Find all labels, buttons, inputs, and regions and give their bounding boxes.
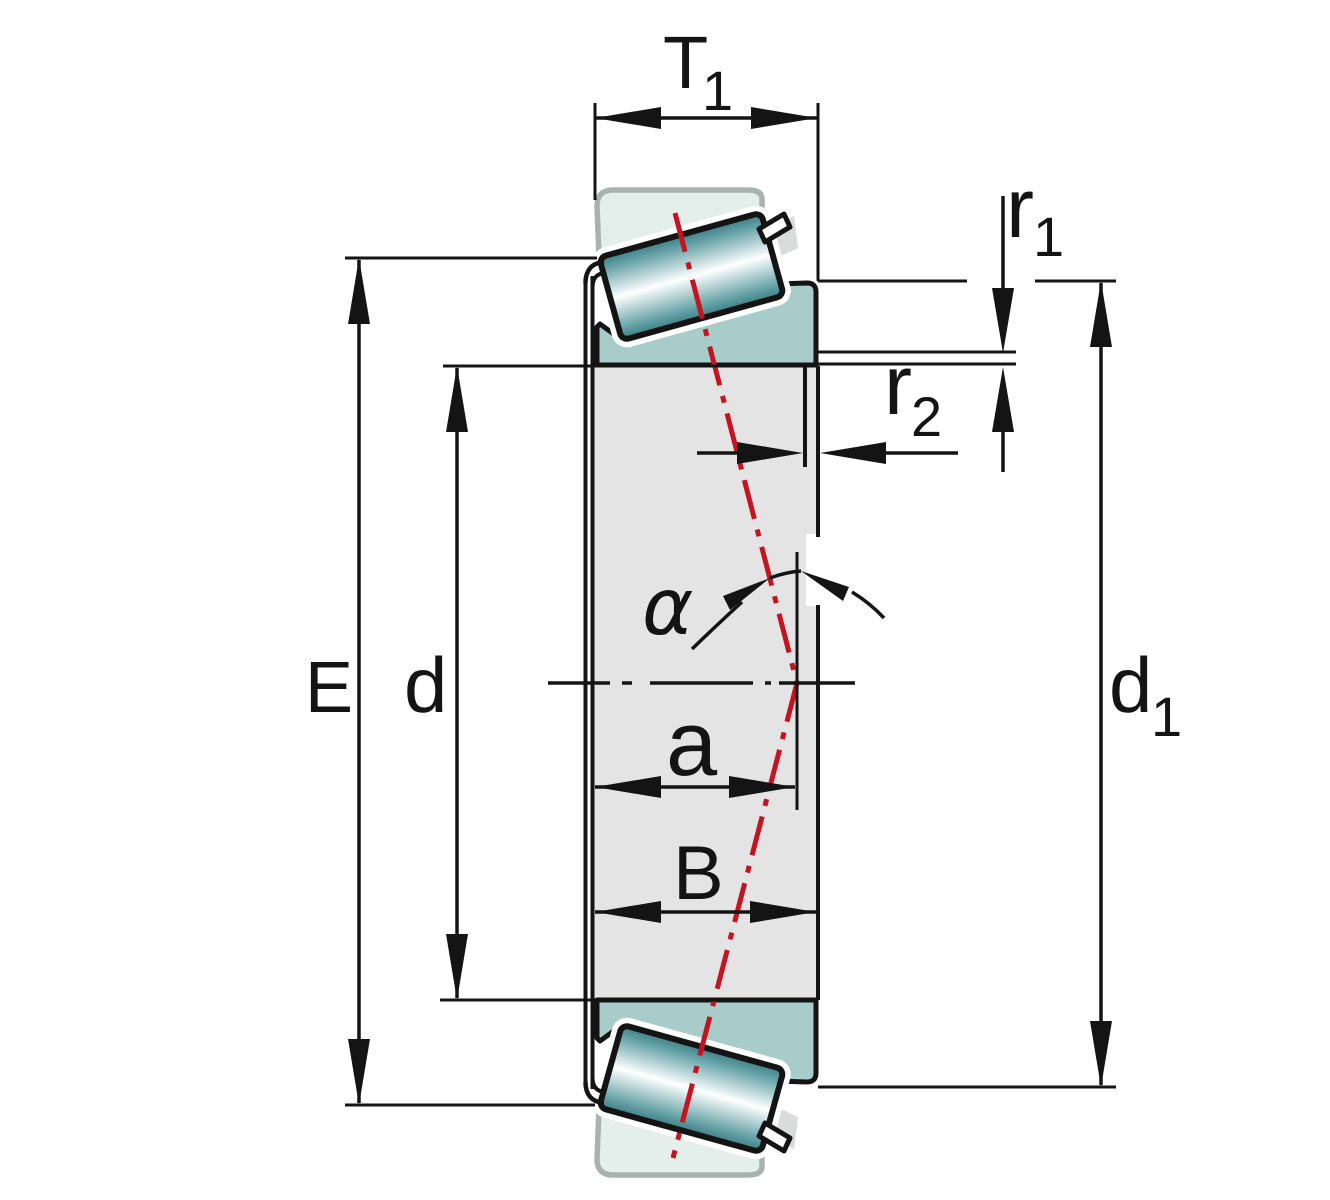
label-r1-subscript: 1 <box>1033 205 1064 268</box>
d-arrow-bottom <box>446 934 468 1000</box>
label-d: d <box>404 641 447 729</box>
d1-arrow-top <box>1090 281 1112 347</box>
edge-break-notch <box>806 534 830 606</box>
d-arrow-top <box>446 366 468 432</box>
t1-arrow-left <box>595 107 661 129</box>
label-e: E <box>305 648 353 728</box>
t1-arrow-right <box>751 107 817 129</box>
label-alpha: α <box>642 563 693 653</box>
r2-arrow-left <box>820 442 886 464</box>
label-d1: d <box>1109 641 1152 729</box>
label-r1: r <box>1006 161 1034 255</box>
e-arrow-top <box>348 258 370 324</box>
label-b: B <box>673 831 724 916</box>
label-r2-subscript: 2 <box>911 385 942 448</box>
label-r2: r <box>884 338 912 432</box>
label-t1-subscript: 1 <box>702 59 733 122</box>
r1-arrow-up <box>992 367 1014 432</box>
bearing-diagram-canvas: T 1 r 1 r 2 α E d a B d 1 <box>0 0 1330 1200</box>
e-arrow-bottom <box>348 1039 370 1105</box>
r1-arrow-down <box>992 288 1014 353</box>
d1-arrow-bottom <box>1090 1021 1112 1087</box>
label-d1-subscript: 1 <box>1151 685 1182 748</box>
angle-leader-right <box>852 592 884 618</box>
bearing-dimension-drawing: T 1 r 1 r 2 α E d a B d 1 <box>0 0 1330 1200</box>
label-a: a <box>666 693 718 795</box>
